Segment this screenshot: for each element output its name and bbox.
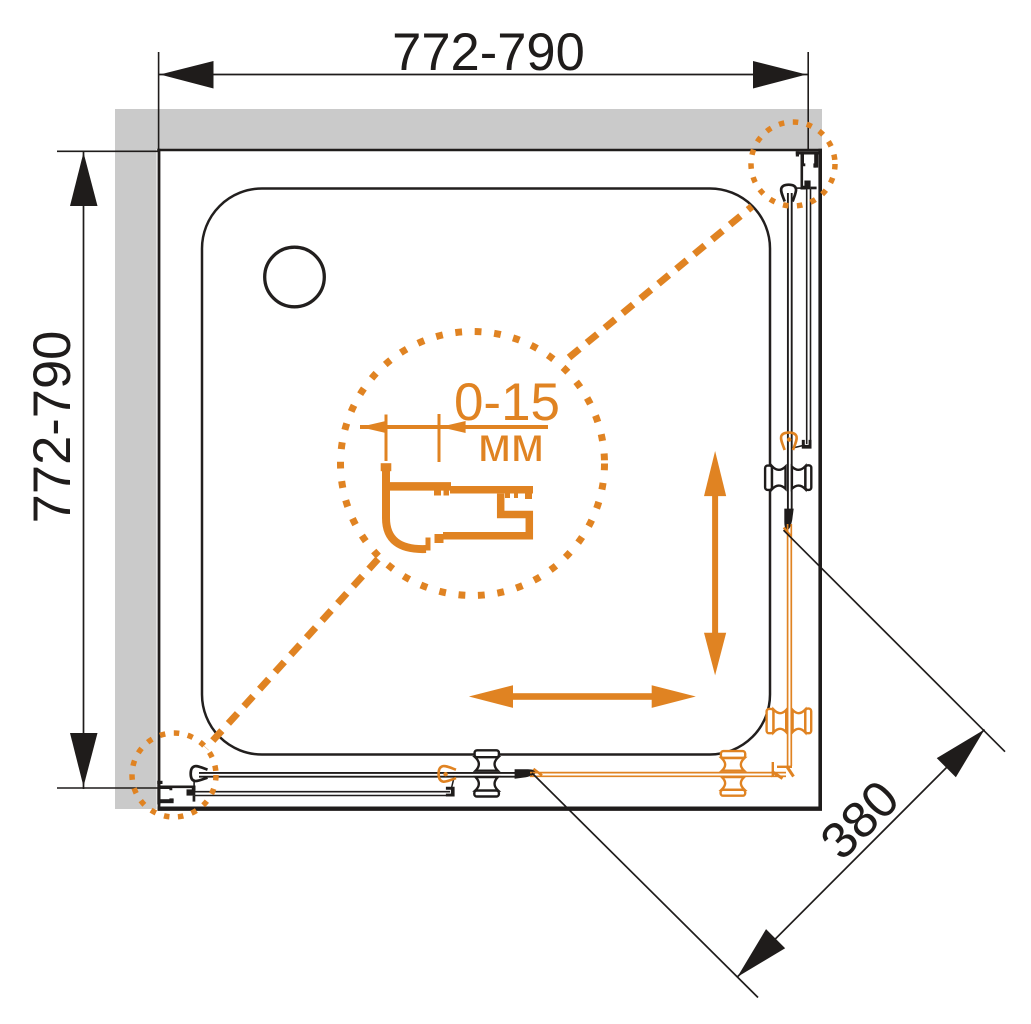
svg-text:772-790: 772-790 xyxy=(392,23,585,82)
svg-text:772-790: 772-790 xyxy=(23,331,82,524)
